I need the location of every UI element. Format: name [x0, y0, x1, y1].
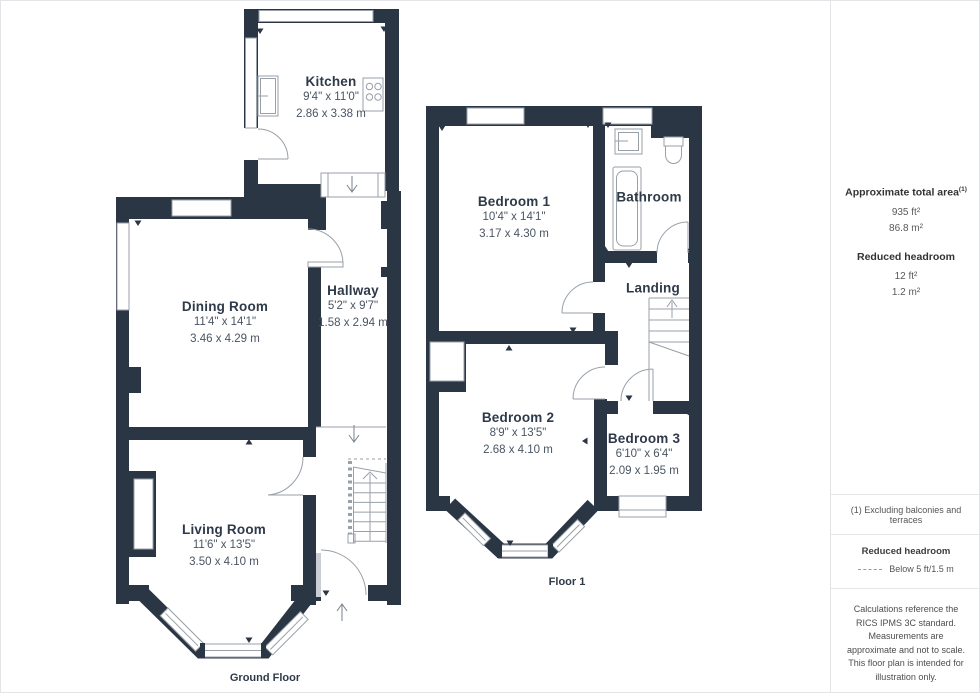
total-area-m: 86.8 m² — [831, 221, 980, 237]
reduced-headroom-m: 1.2 m² — [831, 285, 980, 301]
total-area-ft: 935 ft² — [831, 205, 980, 221]
total-area-label: Approximate total area(1) — [831, 186, 980, 199]
room-label-bedroom2: Bedroom 2 8'9" x 13'5" 2.68 x 4.10 m — [482, 410, 554, 458]
room-label-landing: Landing — [626, 281, 680, 296]
footnote-marker: (1) — [959, 186, 967, 193]
area-summary: Approximate total area(1) 935 ft² 86.8 m… — [831, 186, 980, 301]
bathroom-door-arc — [657, 222, 688, 253]
reduced-headroom-label: Reduced headroom — [831, 251, 980, 263]
reduced-headroom-ft: 12 ft² — [831, 269, 980, 285]
room-label-bedroom3: Bedroom 3 6'10" x 6'4" 2.09 x 1.95 m — [608, 431, 680, 479]
kitchen-hob — [363, 78, 383, 111]
front-door — [316, 550, 366, 597]
legend: Reduced headroom Below 5 ft/1.5 m — [831, 534, 980, 588]
bathroom-sink — [615, 129, 642, 154]
bay-window-bedroom2 — [450, 504, 593, 558]
legend-item: Below 5 ft/1.5 m — [889, 564, 954, 574]
entrance-up-arrow-icon — [337, 604, 347, 621]
floor1-title: Floor 1 — [549, 576, 586, 588]
dashed-line-icon — [858, 569, 882, 570]
stairs-floor1 — [649, 298, 689, 401]
stairs-ground — [348, 459, 386, 543]
room-label-dining: Dining Room 11'4" x 14'1" 3.46 x 4.29 m — [182, 299, 268, 347]
disclaimer-text: Calculations reference the RICS IPMS 3C … — [844, 603, 968, 684]
legend-title: Reduced headroom — [831, 546, 980, 557]
room-label-bedroom1: Bedroom 1 10'4" x 14'1" 3.17 x 4.30 m — [478, 194, 550, 242]
room-label-hallway: Hallway 5'2" x 9'7" 1.58 x 2.94 m — [318, 283, 388, 331]
bay-window-living — [142, 592, 311, 658]
ground-floor-title: Ground Floor — [230, 672, 300, 684]
disclaimer-section: Calculations reference the RICS IPMS 3C … — [831, 588, 980, 693]
bedroom3-door-arc — [621, 369, 653, 401]
info-sidebar: Approximate total area(1) 935 ft² 86.8 m… — [830, 1, 980, 693]
bedroom1-door-arc — [562, 282, 593, 313]
kitchen-door-arc — [258, 129, 288, 159]
footnote: (1) Excluding balconies and terraces — [831, 494, 980, 534]
living-door-arc — [268, 457, 303, 495]
room-label-bathroom: Bathroom — [616, 190, 681, 205]
kitchen-sink — [258, 76, 278, 116]
floor1-plan — [426, 106, 702, 558]
kitchen-step-threshold — [321, 173, 385, 197]
toilet — [664, 137, 683, 164]
floorplan-page: Kitchen 9'4" x 11'0" 2.86 x 3.38 m Dinin… — [0, 0, 980, 693]
room-label-living: Living Room 11'6" x 13'5" 3.50 x 4.10 m — [182, 522, 266, 570]
room-label-kitchen: Kitchen 9'4" x 11'0" 2.86 x 3.38 m — [296, 74, 366, 122]
bedroom2-door-arc — [573, 367, 605, 399]
dining-door-arc — [308, 229, 343, 267]
bathtub — [613, 167, 641, 250]
step-down-arrow-icon — [349, 425, 359, 442]
